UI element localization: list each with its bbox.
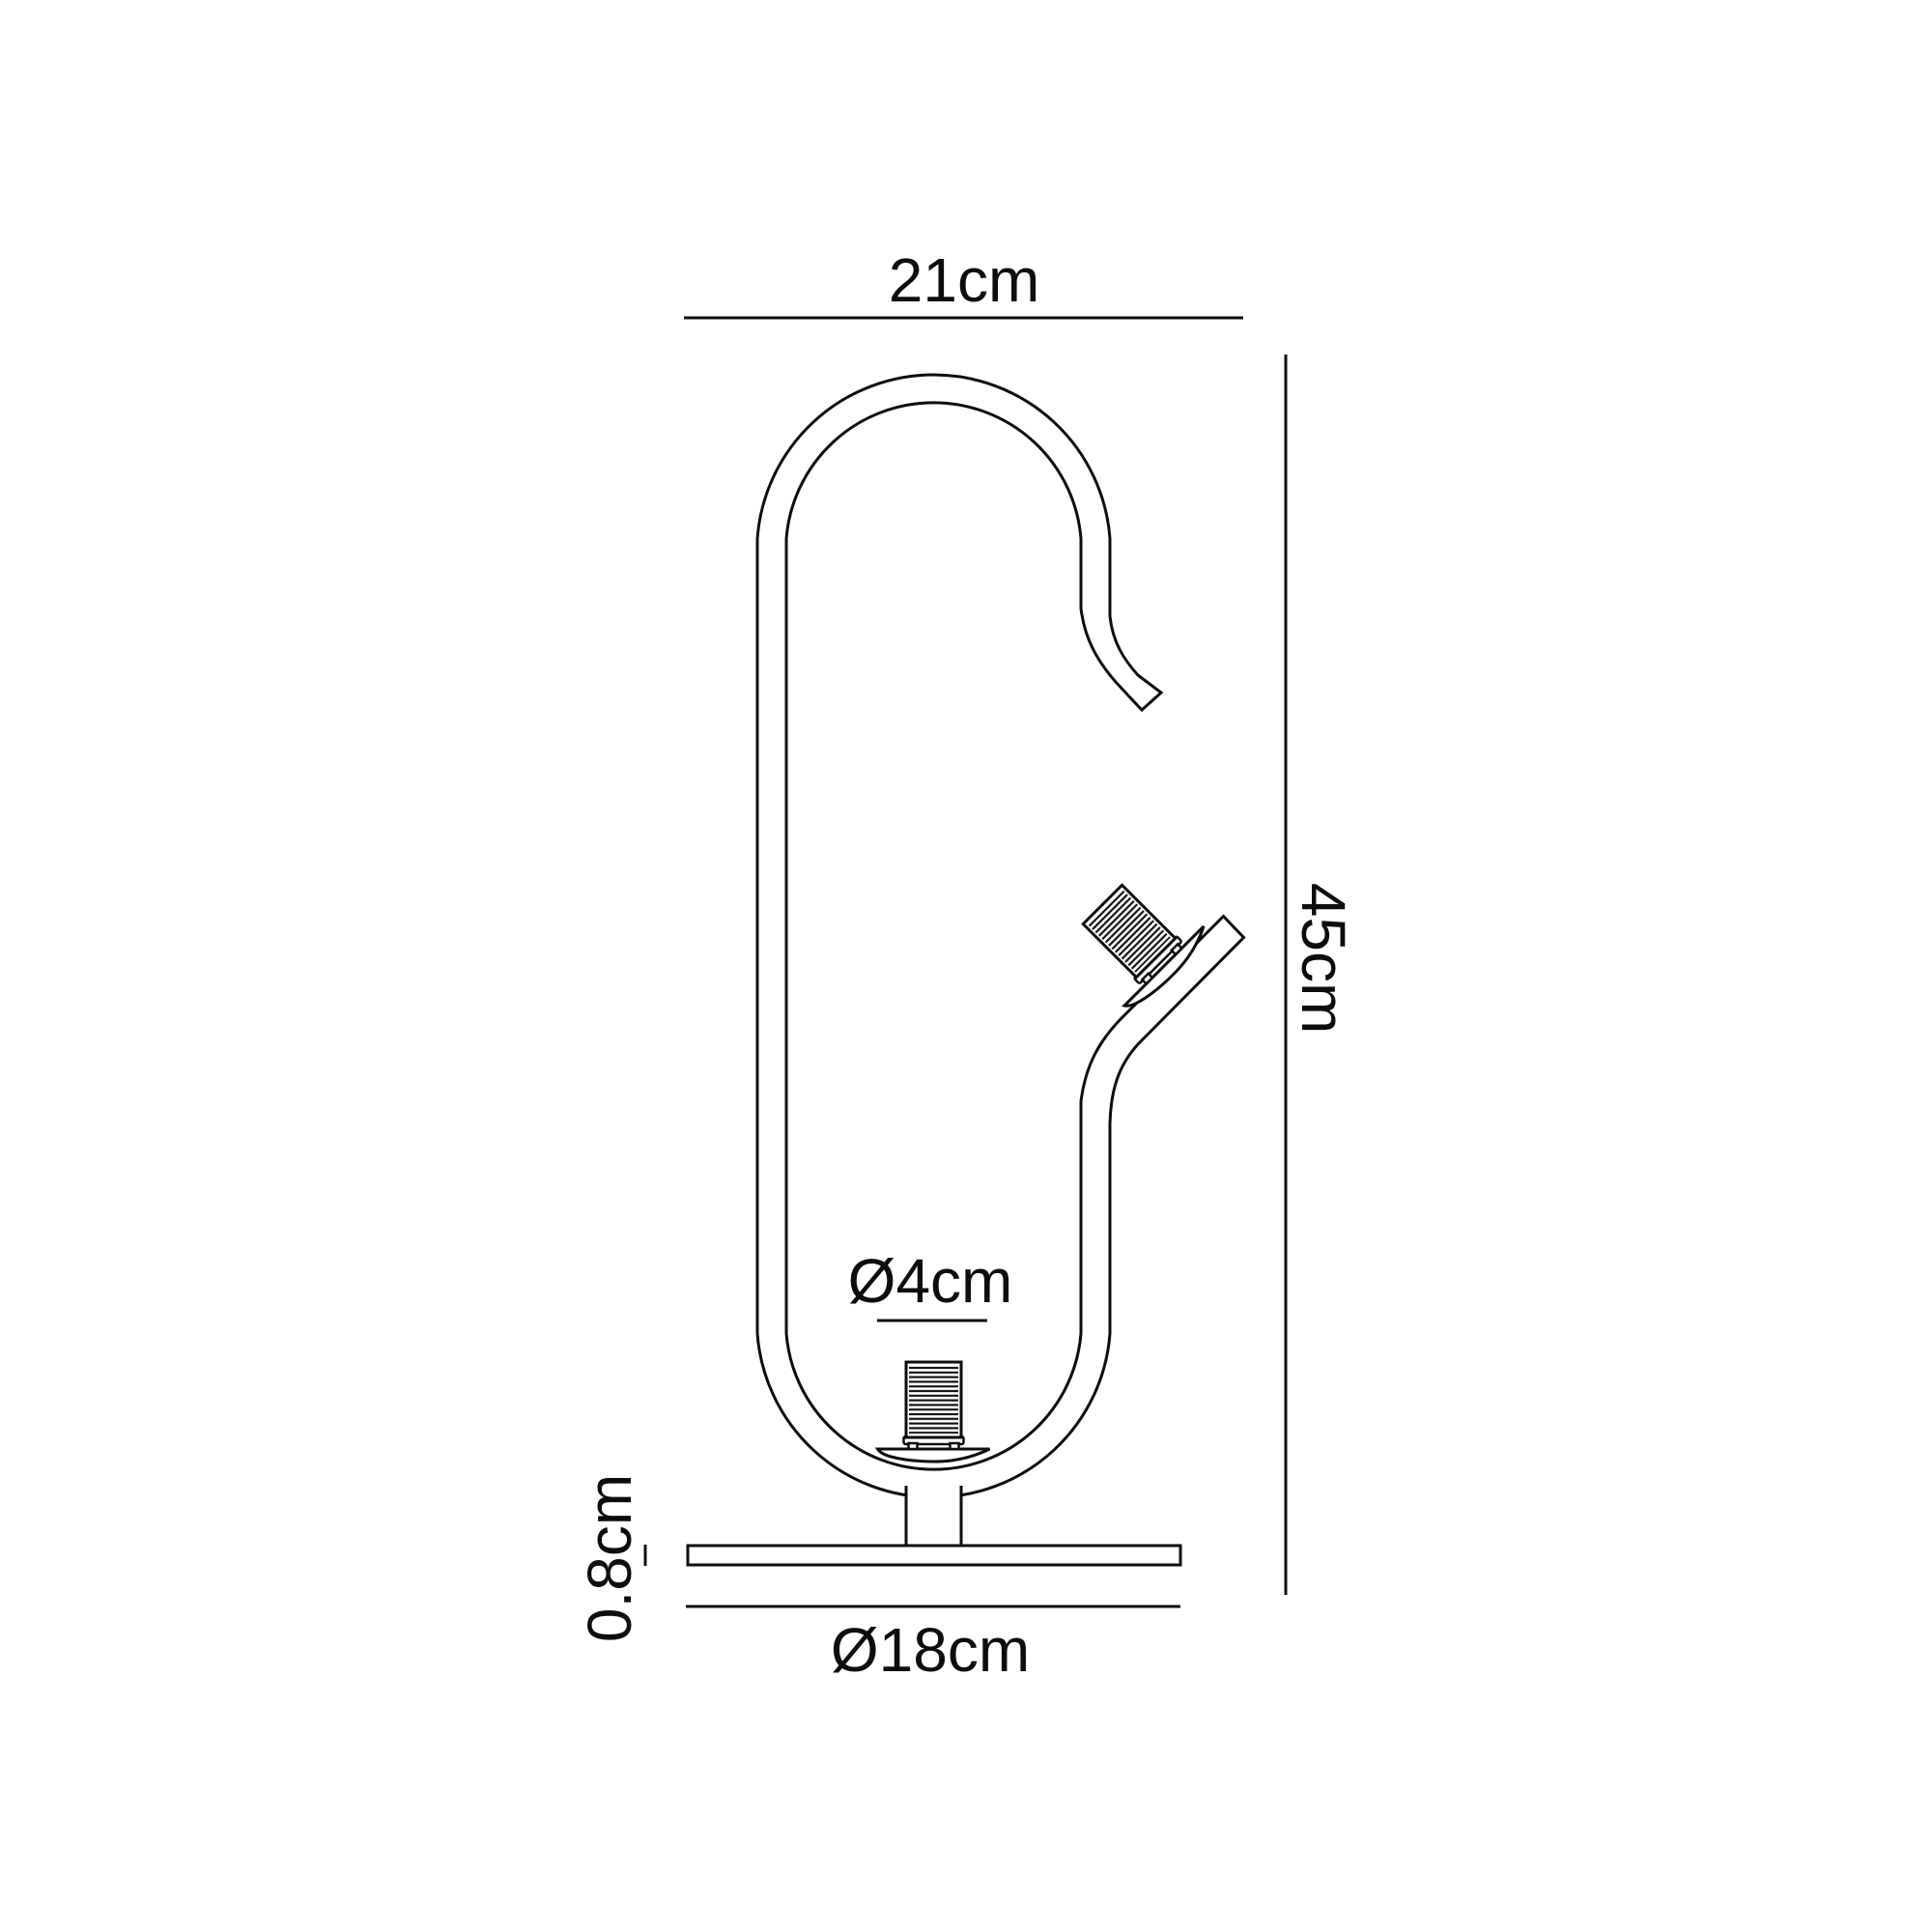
dim-base-diameter-label: Ø18cm [831, 1615, 1030, 1685]
lamp-dimension-diagram: 21cm 45cm Ø4cm 0.8cm Ø18cm [0, 0, 1932, 1932]
lamp-base-plate [688, 1546, 1180, 1565]
dim-base-thickness-label: 0.8cm [575, 1474, 644, 1642]
dim-height-label: 45cm [1289, 883, 1358, 1035]
dim-socket-diameter-label: Ø4cm [848, 1246, 1013, 1316]
bottom-socket [878, 1362, 990, 1462]
diagram-svg: 21cm 45cm Ø4cm 0.8cm Ø18cm [0, 0, 1932, 1932]
lamp-stem-fill [906, 1486, 961, 1546]
dim-top-width-label: 21cm [889, 245, 1040, 315]
